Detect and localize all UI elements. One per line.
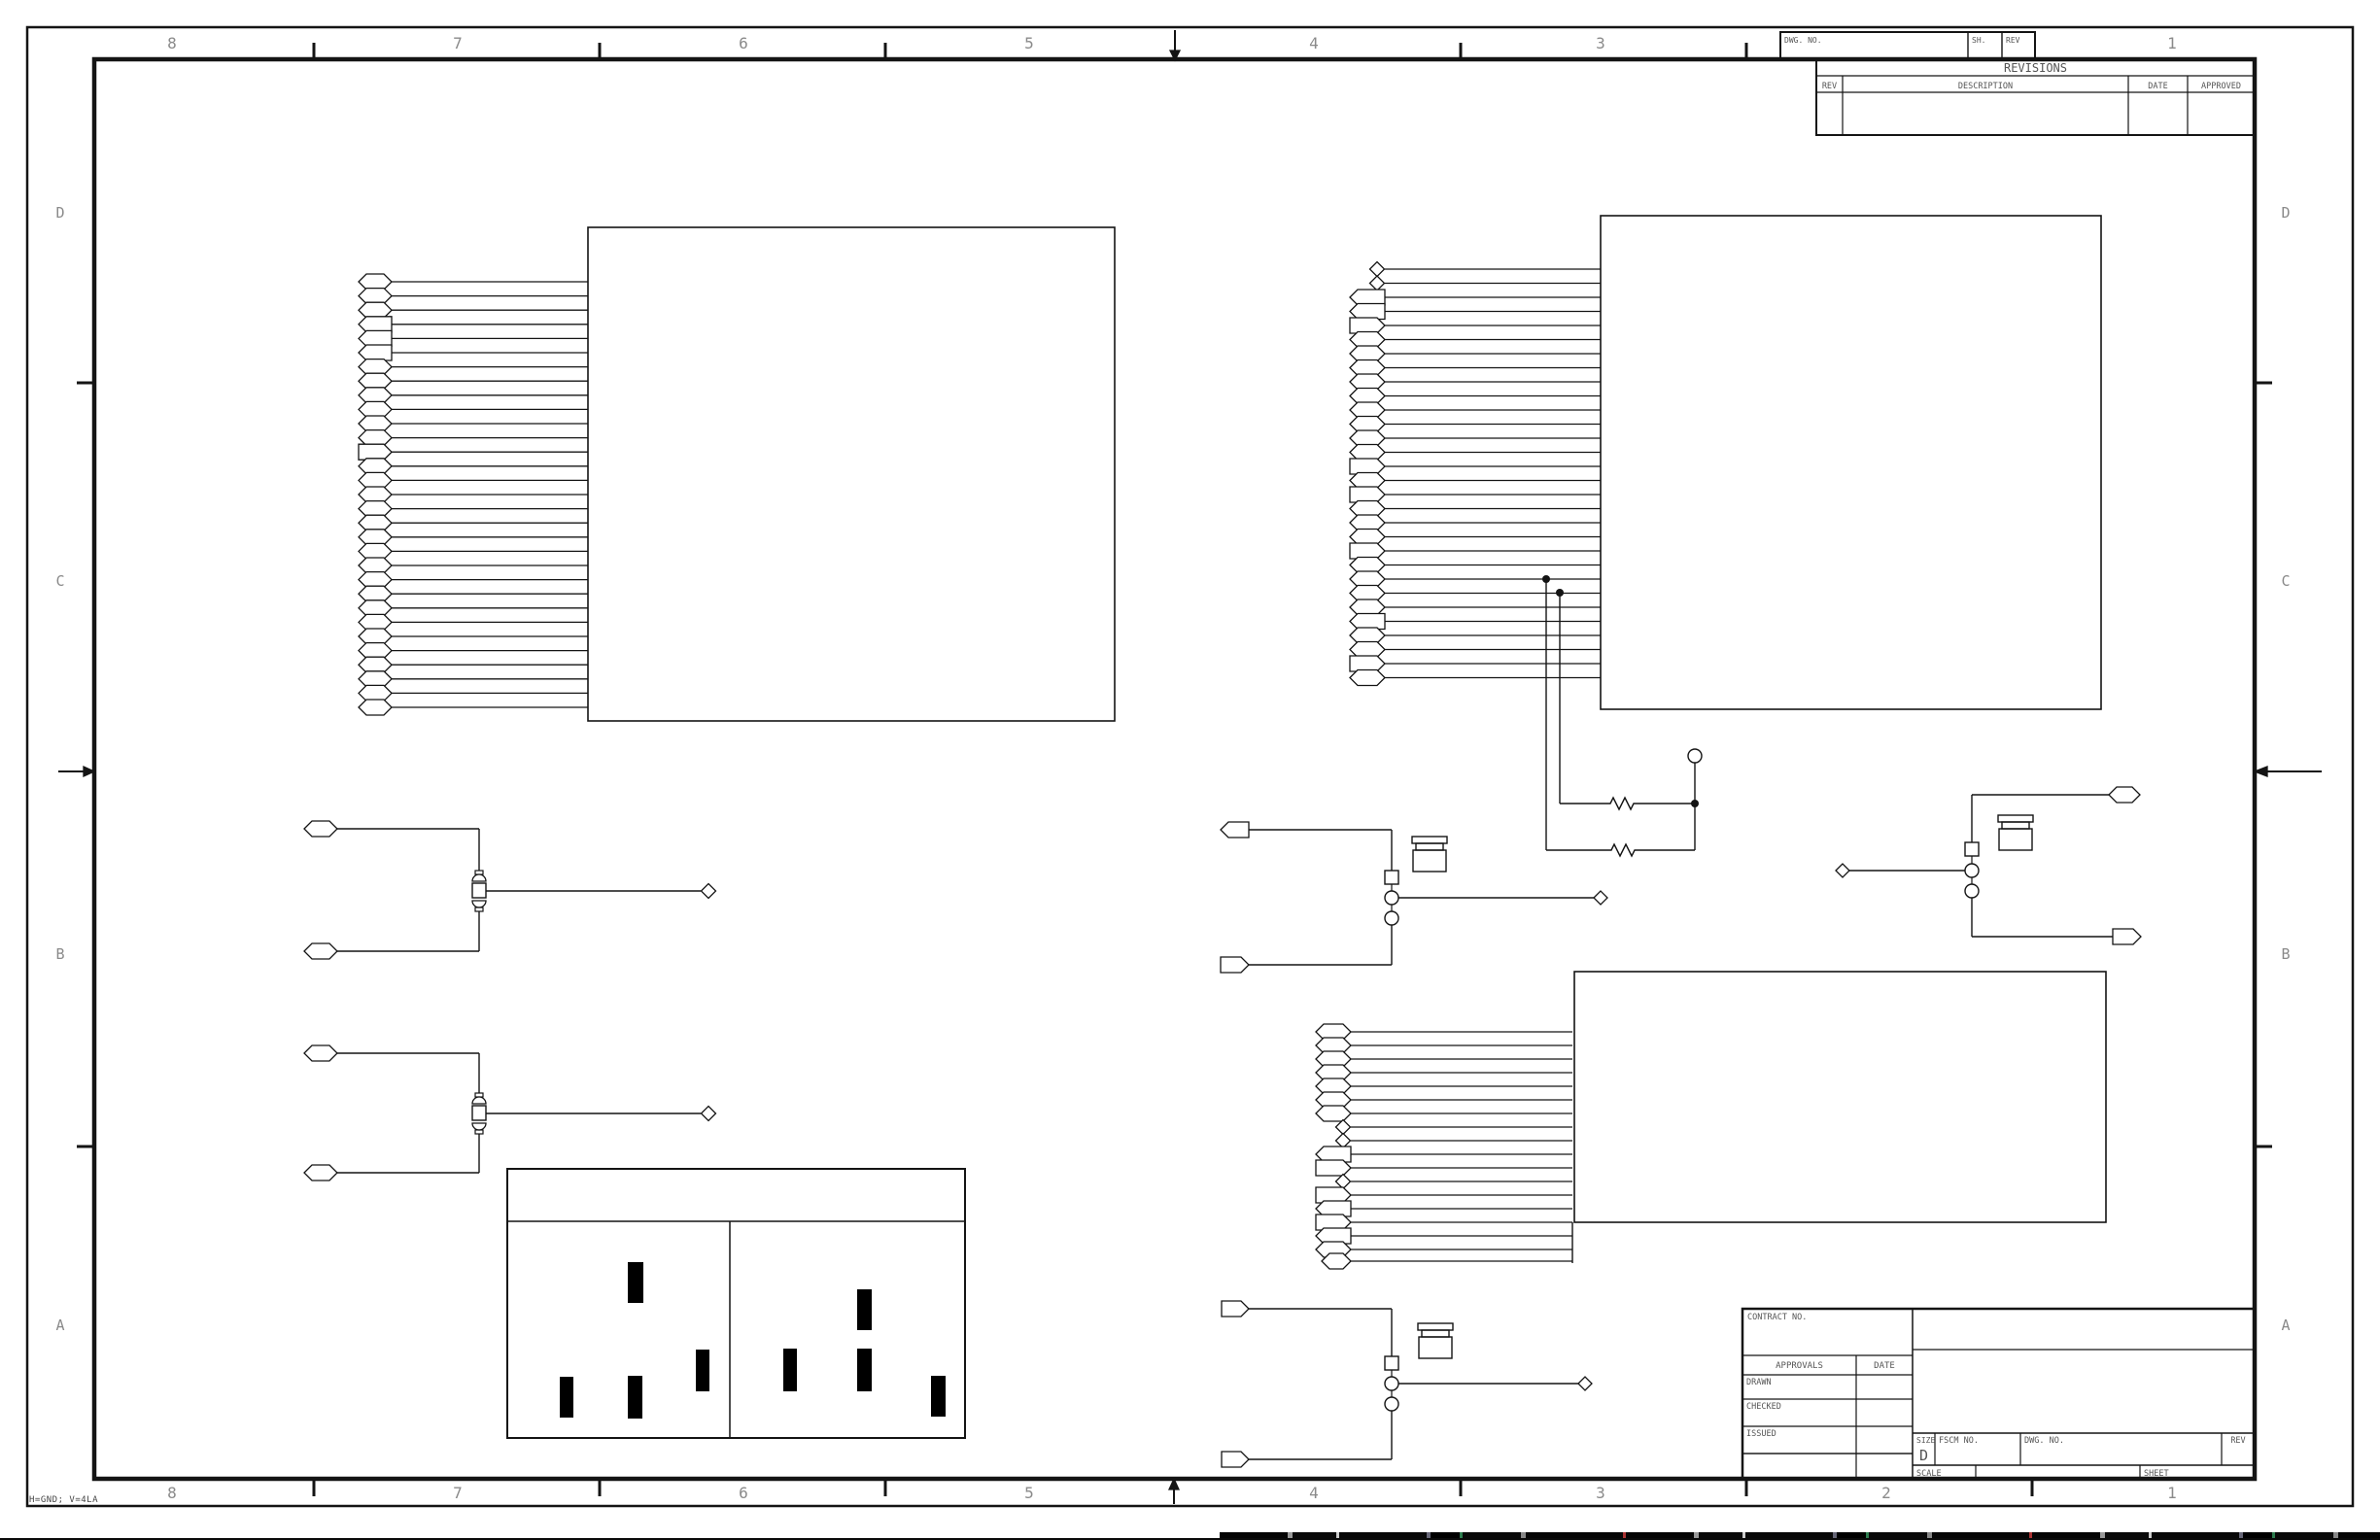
net-flag (359, 643, 392, 659)
net-flag (359, 359, 392, 375)
jumper-bar (628, 1262, 643, 1303)
net-flag (359, 629, 392, 644)
net-flag (359, 317, 392, 332)
shield-lid (1418, 1323, 1453, 1330)
net-flag (1350, 628, 1385, 643)
net-flag (359, 373, 392, 389)
net-flag (1222, 1301, 1249, 1317)
net-flag (1350, 530, 1385, 545)
zone-letter: A (55, 1317, 64, 1334)
zone-number: 3 (1596, 34, 1605, 52)
strip-cell-label: SH. (1972, 36, 1985, 45)
dwg-no-label: DWG. NO. (2024, 1436, 2064, 1446)
schematic-sheet: 876543187654321DCBADCBADWG. NO.SH.REVREV… (0, 0, 2380, 1540)
size-value: D (1919, 1447, 1928, 1464)
approvals-row-label: ISSUED (1746, 1429, 1776, 1439)
zone-letter: A (2281, 1317, 2290, 1334)
drawing-canvas: 876543187654321DCBADCBADWG. NO.SH.REVREV… (0, 0, 2380, 1540)
component-circle (1965, 884, 1979, 898)
shield-body (1419, 1337, 1452, 1358)
strip-cell-label: DWG. NO. (1784, 36, 1822, 45)
net-flag (1350, 290, 1385, 305)
net-flag (359, 671, 392, 687)
date-label: DATE (1874, 1361, 1895, 1371)
net-flag (1221, 957, 1249, 973)
zone-number: 2 (1881, 1484, 1891, 1502)
net-flag (359, 345, 392, 360)
balun-nub (475, 907, 483, 911)
revisions-column-header: APPROVED (2201, 82, 2241, 91)
net-flag (359, 600, 392, 616)
jumper-bar (931, 1376, 946, 1417)
net-flag (359, 614, 392, 630)
net-flag (359, 657, 392, 672)
jumper-bar (857, 1289, 872, 1330)
size-label: SIZE (1916, 1436, 1935, 1445)
jumper-bar (857, 1349, 872, 1391)
component-circle (1385, 1377, 1398, 1390)
net-flag (359, 572, 392, 588)
net-flag (1221, 822, 1249, 838)
bottom-right-ic (1574, 972, 2106, 1222)
net-flag (359, 501, 392, 517)
zone-number: 7 (453, 1484, 463, 1502)
component-square (1965, 842, 1979, 856)
component-circle (1385, 1397, 1398, 1411)
zone-number: 1 (2167, 1484, 2177, 1502)
revisions-column-header: DESCRIPTION (1958, 82, 2013, 91)
zone-number: 5 (1024, 1484, 1034, 1502)
net-flag (359, 558, 392, 573)
component-square (1385, 871, 1398, 884)
net-flag (1350, 459, 1385, 474)
net-flag (1350, 543, 1385, 559)
net-flag (1350, 360, 1385, 376)
terminal-circle (1688, 749, 1702, 763)
net-diamond (1336, 1134, 1351, 1148)
net-diamond (1594, 891, 1607, 905)
zone-number: 1 (2167, 34, 2177, 52)
balun-dome (472, 1097, 486, 1104)
revisions-column-header: DATE (2148, 82, 2167, 91)
approvals-row-label: DRAWN (1746, 1378, 1772, 1387)
balun-dome (472, 1123, 486, 1130)
balun-square (472, 883, 486, 898)
zone-number: 8 (167, 1484, 177, 1502)
net-flag (1222, 1452, 1249, 1467)
net-diamond (1336, 1175, 1351, 1189)
zone-number: 6 (739, 1484, 748, 1502)
plot-config-note: H=GND; V=4LA (29, 1495, 98, 1505)
net-diamond (1370, 276, 1385, 291)
contract-no-label: CONTRACT NO. (1747, 1313, 1807, 1322)
resistor-top (1606, 798, 1638, 809)
sheet-label: SHEET (2144, 1469, 2169, 1479)
net-flag (304, 821, 337, 837)
component-circle (1385, 911, 1398, 925)
shield-lid (1412, 837, 1447, 843)
shield-body (1413, 850, 1446, 872)
net-flag (1350, 445, 1385, 461)
strip-cell-label: REV (2006, 36, 2020, 45)
net-flag (1350, 487, 1385, 502)
net-flag (359, 302, 392, 318)
net-diamond (702, 1107, 716, 1121)
shield-neck (1416, 843, 1443, 850)
inner-border (94, 59, 2255, 1479)
zone-letter: B (55, 945, 64, 963)
net-flag (1350, 586, 1385, 601)
revisions-column-header: REV (1822, 82, 1837, 91)
net-flag (359, 586, 392, 601)
net-flag (1350, 318, 1385, 333)
net-flag (359, 487, 392, 502)
zone-number: 6 (739, 34, 748, 52)
scale-label: SCALE (1916, 1469, 1942, 1479)
component-circle (1965, 864, 1979, 877)
approvals-row-label: CHECKED (1746, 1402, 1781, 1412)
zone-number: 7 (453, 34, 463, 52)
net-flag (359, 401, 392, 417)
zone-letter: C (55, 572, 64, 590)
net-flag (1350, 473, 1385, 489)
net-flag (1350, 346, 1385, 361)
net-diamond (1336, 1120, 1351, 1135)
outer-border (27, 27, 2353, 1506)
shield-lid (1998, 815, 2033, 822)
balun-dome (472, 874, 486, 881)
net-flag (359, 289, 392, 304)
zone-number: 8 (167, 34, 177, 52)
net-flag (1350, 402, 1385, 418)
net-flag (1316, 1106, 1351, 1121)
approvals-label: APPROVALS (1776, 1361, 1823, 1371)
net-flag (359, 274, 392, 290)
net-flag (1350, 642, 1385, 658)
jumper-table (507, 1169, 965, 1438)
net-flag (1350, 332, 1385, 348)
net-flag (2113, 929, 2141, 944)
shield-body (1999, 829, 2032, 850)
zone-letter: B (2281, 945, 2290, 963)
fscm-no-label: FSCM NO. (1939, 1436, 1979, 1446)
net-flag (1350, 670, 1385, 686)
net-flag (1350, 374, 1385, 390)
net-flag (359, 515, 392, 530)
jumper-bar (696, 1350, 709, 1391)
balun-dome (472, 901, 486, 907)
net-flag (359, 685, 392, 701)
net-flag (359, 530, 392, 545)
net-flag (359, 543, 392, 559)
balun-square (472, 1106, 486, 1120)
net-flag (359, 472, 392, 488)
net-flag (1350, 515, 1385, 530)
net-flag (359, 388, 392, 403)
left-ic (588, 227, 1115, 721)
net-flag (1350, 599, 1385, 615)
balun-nub (475, 1130, 483, 1134)
component-circle (1385, 891, 1398, 905)
net-diamond (1578, 1377, 1592, 1390)
net-flag (1350, 501, 1385, 517)
net-flag (359, 330, 392, 346)
component-square (1385, 1356, 1398, 1370)
zone-number: 4 (1309, 1484, 1319, 1502)
jumper-bar (628, 1376, 642, 1419)
net-flag (1350, 389, 1385, 404)
net-flag (359, 444, 392, 460)
net-flag (359, 459, 392, 474)
net-flag (359, 700, 392, 715)
net-flag (359, 416, 392, 431)
zone-letter: D (55, 204, 64, 222)
zone-number: 5 (1024, 34, 1034, 52)
rev-label: REV (2230, 1436, 2245, 1446)
net-flag (1350, 656, 1385, 671)
net-flag (1350, 614, 1385, 630)
net-flag (1350, 304, 1385, 320)
revisions-title: REVISIONS (2004, 61, 2067, 75)
net-flag (304, 943, 337, 959)
resistor-bottom (1607, 844, 1638, 856)
zone-letter: C (2281, 572, 2290, 590)
jumper-bar (783, 1349, 797, 1391)
net-diamond (1836, 864, 1849, 877)
net-flag (1350, 558, 1385, 573)
net-flag (1316, 1160, 1351, 1176)
shield-neck (2002, 822, 2029, 829)
net-diamond (1370, 262, 1385, 277)
jumper-bar (560, 1377, 573, 1418)
net-flag (304, 1045, 337, 1061)
net-flag (1350, 571, 1385, 587)
zone-number: 4 (1309, 34, 1319, 52)
net-flag (1350, 417, 1385, 432)
net-flag (2109, 787, 2140, 803)
right-top-ic (1601, 216, 2101, 709)
net-flag (1350, 430, 1385, 446)
shield-neck (1422, 1330, 1449, 1337)
net-flag (304, 1165, 337, 1181)
zone-number: 3 (1596, 1484, 1605, 1502)
zone-letter: D (2281, 204, 2290, 222)
net-flag (359, 430, 392, 446)
net-diamond (702, 884, 716, 899)
